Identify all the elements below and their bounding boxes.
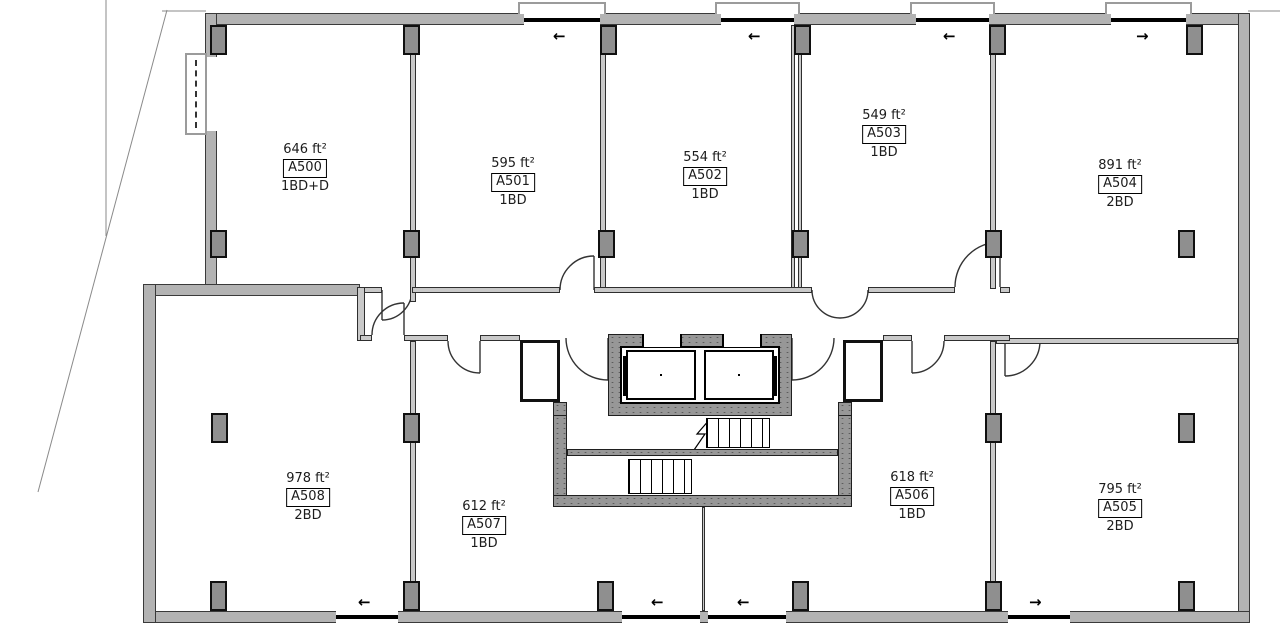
wall-exterior-right [1238,13,1250,623]
wall-corridor-left-end [357,287,365,341]
unit-bedrooms: 1BD+D [281,179,329,195]
slide-arrow-left-icon: ← [553,29,566,44]
unit-area: 618 ft² [890,470,934,486]
stair-wall-right [838,415,852,507]
glazing-a507 [622,615,700,619]
column [1178,581,1195,611]
door-arc-lobby-right [792,338,834,380]
elevator-door-right [722,334,762,347]
column [794,25,811,55]
column [210,230,227,258]
elevator-door-left [642,334,682,347]
slide-arrow-left-icon: ← [358,595,371,610]
unit-number: A500 [283,159,327,177]
unit-number: A505 [1098,499,1142,517]
column [210,25,227,55]
glazing-a508 [336,615,398,619]
column [1186,25,1203,55]
wall-jog-a508-top [143,284,360,296]
wall-corridor-bottom-4 [883,335,912,341]
column [403,25,420,55]
wall-corridor-bottom-1 [360,335,372,341]
glazing-a505 [1008,615,1070,619]
column [792,230,809,258]
slide-arrow-right-icon: → [1029,595,1042,610]
unit-label-a507: 612 ft² A507 1BD [462,499,506,552]
glazing-a504 [1111,18,1186,22]
cab-center-mark-left [660,374,662,376]
unit-label-a501: 595 ft² A501 1BD [491,156,535,209]
door-arc-double-left [812,290,840,318]
unit-area: 549 ft² [862,108,906,124]
glazing-a503 [916,18,989,22]
wall-corridor-bottom-5 [944,335,1010,341]
door-arc-lobby-left [566,338,608,380]
door-arc-a508 [372,303,404,335]
unit-number: A501 [491,173,535,191]
slide-arrow-left-icon: ← [651,595,664,610]
glazing-a502 [721,18,794,22]
column [210,581,227,611]
unit-area: 554 ft² [683,150,727,166]
door-arc-a501 [560,256,594,290]
stair-flight-upper [706,418,770,448]
door-arc-double-right [840,290,868,318]
door-arc-a507 [448,341,480,373]
unit-area: 612 ft² [462,499,506,515]
stair-wall-middle [567,449,838,456]
wall-corridor-top-5 [1000,287,1010,293]
window-dash-a500 [195,60,197,128]
wall-corridor-bottom-2 [404,335,448,341]
wall-corridor-top-4 [868,287,955,293]
unit-number: A506 [890,487,934,505]
column [989,25,1006,55]
slide-arrow-left-icon: ← [943,29,956,44]
slide-arrow-left-icon: ← [737,595,750,610]
unit-area: 595 ft² [491,156,535,172]
unit-bedrooms: 1BD [683,187,727,203]
unit-label-a500: 646 ft² A500 1BD+D [281,142,329,195]
wall-divider-a507-a506 [702,507,705,611]
wall-exterior-left-lower [143,284,156,623]
unit-bedrooms: 2BD [1098,519,1142,535]
column [792,581,809,611]
door-arc-a506 [912,341,944,373]
column [985,230,1002,258]
unit-label-a503: 549 ft² A503 1BD [862,108,906,161]
unit-number: A503 [862,125,906,143]
stair-wall-bottom [553,495,852,507]
unit-number: A508 [286,488,330,506]
door-arc-a500 [382,290,412,320]
shaft-right [843,340,883,402]
column [985,413,1002,443]
column [211,413,228,443]
unit-label-a505: 795 ft² A505 2BD [1098,482,1142,535]
unit-label-a502: 554 ft² A502 1BD [683,150,727,203]
column [597,581,614,611]
wall-divider-a504-a505 [996,338,1238,344]
slide-arrow-left-icon: ← [748,29,761,44]
floor-plan: ← ← ← → ← ← ← → [0,0,1280,627]
unit-bedrooms: 1BD [862,145,906,161]
column [600,25,617,55]
unit-area: 891 ft² [1098,158,1142,174]
unit-bedrooms: 1BD [491,193,535,209]
door-arc-a505 [1005,341,1040,376]
column [403,230,420,258]
unit-label-a506: 618 ft² A506 1BD [890,470,934,523]
wall-corridor-top-3 [594,287,812,293]
column [598,230,615,258]
unit-number: A507 [462,516,506,534]
unit-area: 646 ft² [281,142,329,158]
glazing-a501 [524,18,600,22]
wall-corridor-bottom-3 [480,335,520,341]
wall-divider-a506-a505 [990,341,996,611]
wall-corridor-top-2 [412,287,560,293]
unit-area: 978 ft² [286,471,330,487]
elevator-rail-right [774,356,777,396]
wall-divider-a508-a507 [410,341,416,611]
column [1178,230,1195,258]
stair-flight-lower [628,459,692,494]
elevator-rail-left [623,356,626,396]
column [1178,413,1195,443]
unit-label-a504: 891 ft² A504 2BD [1098,158,1142,211]
cab-center-mark-right [738,374,740,376]
unit-number: A502 [683,167,727,185]
unit-bedrooms: 2BD [286,508,330,524]
unit-bedrooms: 2BD [1098,195,1142,211]
slide-arrow-right-icon: → [1136,29,1149,44]
glazing-a506 [708,615,786,619]
column [403,581,420,611]
unit-area: 795 ft² [1098,482,1142,498]
stair-wall-left [553,415,567,507]
unit-label-a508: 978 ft² A508 2BD [286,471,330,524]
wall-divider-a500-a501 [410,25,416,302]
column [985,581,1002,611]
shaft-left [520,340,560,402]
unit-number: A504 [1098,175,1142,193]
unit-bedrooms: 1BD [890,507,934,523]
unit-bedrooms: 1BD [462,536,506,552]
column [403,413,420,443]
